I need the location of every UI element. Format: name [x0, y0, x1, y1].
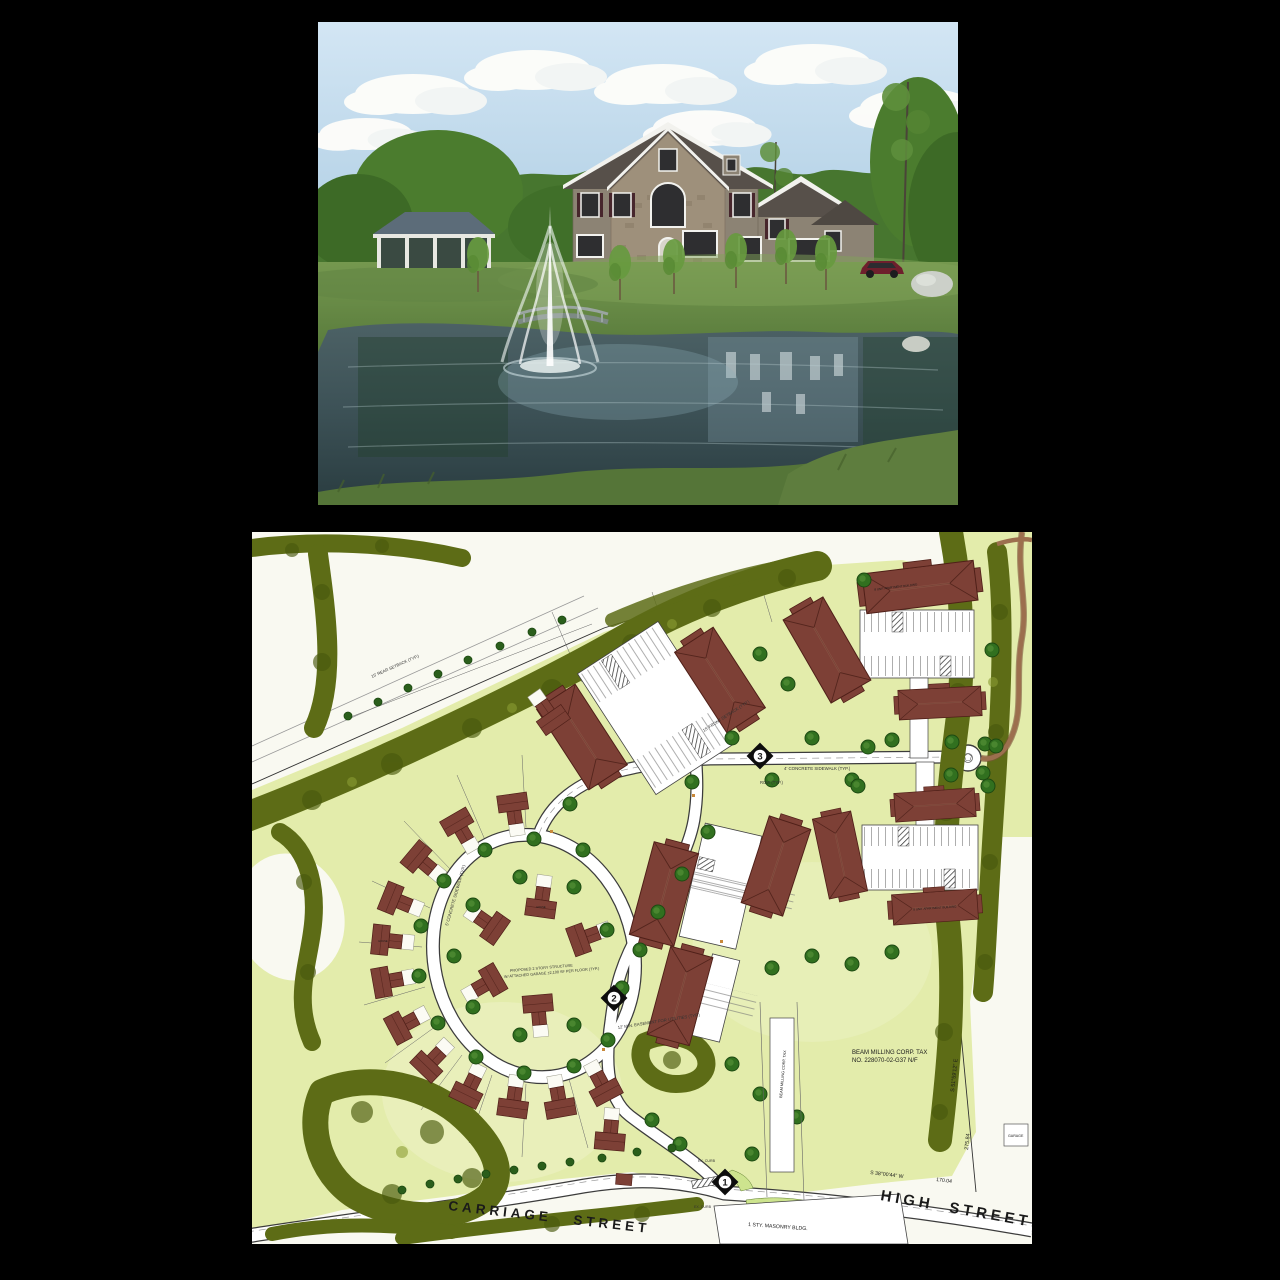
house-label-1: HOUSE — [378, 939, 387, 943]
marker-3-label: 3 — [757, 752, 762, 763]
presentation-board: < — [0, 0, 1280, 1280]
marker-1-label: 1 — [722, 1178, 728, 1189]
parcel-note-line2: NO. 228070-02-G37 N/F — [852, 1058, 918, 1064]
property-photo — [318, 22, 958, 505]
note-ex-curb-2: EX. CURB — [694, 1205, 712, 1209]
detached-garage — [616, 1173, 633, 1185]
parcel-note-line1: BEAM MILLING CORP. TAX — [852, 1050, 927, 1056]
note-ex-curb-1: EX. CURB — [698, 1159, 716, 1163]
site-plan-drawing: < — [252, 532, 1032, 1244]
house-label-2: HOUSE — [536, 905, 545, 909]
garage-label: GARAGE — [1008, 1134, 1024, 1138]
small-boulder — [902, 336, 930, 352]
marker-2-label: 2 — [611, 994, 616, 1005]
photo-art — [318, 22, 958, 505]
site-plan-art: < — [252, 532, 1032, 1244]
note-row: ROW (TYP.) — [760, 780, 784, 785]
note-sidewalk4: 4' CONCRETE SIDEWALK (TYP.) — [784, 766, 851, 771]
